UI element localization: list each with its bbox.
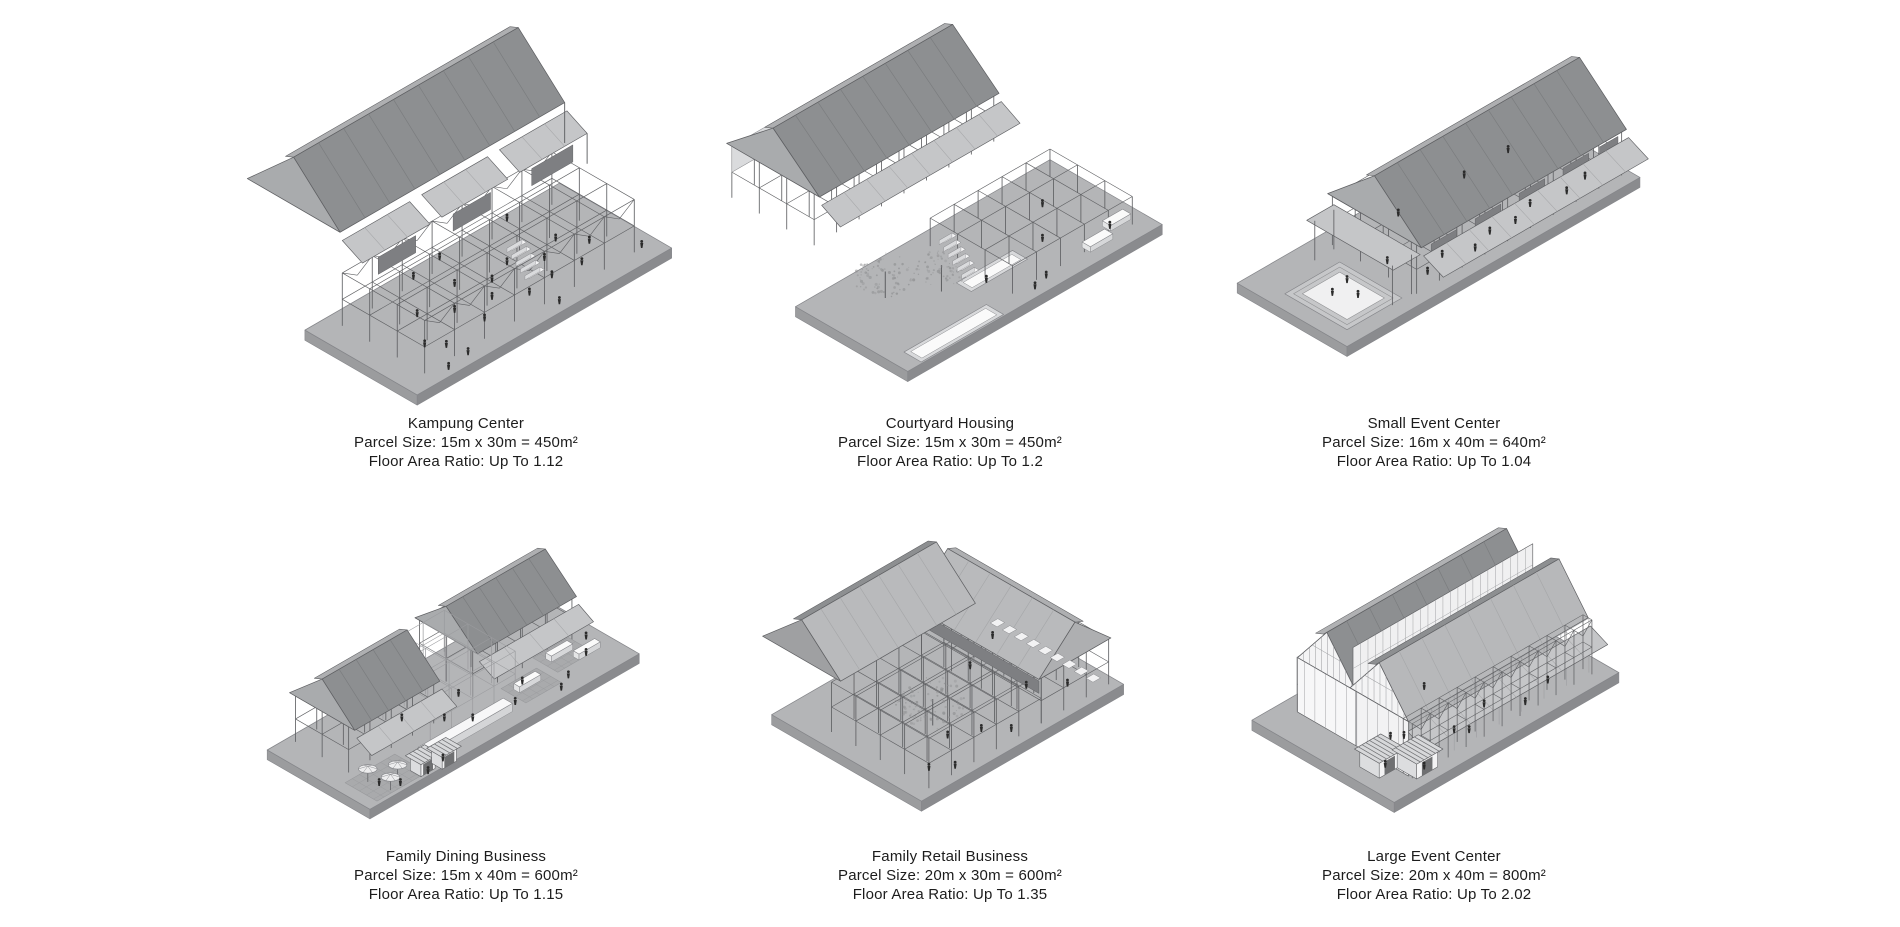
building-card-large-event-center: Large Event Center Parcel Size: 20m x 40… (1192, 471, 1676, 904)
building-title: Kampung Center (354, 414, 578, 433)
building-title: Family Dining Business (354, 847, 578, 866)
building-parcel-size: Parcel Size: 15m x 30m = 450m² (354, 433, 578, 452)
kampung-center-illustration (241, 6, 692, 410)
building-title: Large Event Center (1322, 847, 1546, 866)
typology-diagram-sheet: Kampung Center Parcel Size: 15m x 30m = … (0, 0, 1900, 927)
building-caption: Family Retail Business Parcel Size: 20m … (838, 847, 1062, 904)
building-floor-area-ratio: Floor Area Ratio: Up To 1.2 (838, 452, 1062, 471)
building-card-family-dining-business: Family Dining Business Parcel Size: 15m … (224, 471, 708, 904)
building-caption: Family Dining Business Parcel Size: 15m … (354, 847, 578, 904)
building-card-small-event-center: Small Event Center Parcel Size: 16m x 40… (1192, 6, 1676, 471)
building-card-kampung-center: Kampung Center Parcel Size: 15m x 30m = … (224, 6, 708, 471)
family-retail-business-illustration (727, 471, 1173, 843)
building-caption: Small Event Center Parcel Size: 16m x 40… (1322, 414, 1546, 471)
building-parcel-size: Parcel Size: 16m x 40m = 640m² (1322, 433, 1546, 452)
building-card-courtyard-housing: Courtyard Housing Parcel Size: 15m x 30m… (708, 6, 1192, 471)
building-title: Courtyard Housing (838, 414, 1062, 433)
building-typology-grid: Kampung Center Parcel Size: 15m x 30m = … (224, 0, 1676, 904)
building-floor-area-ratio: Floor Area Ratio: Up To 1.12 (354, 452, 578, 471)
building-caption: Courtyard Housing Parcel Size: 15m x 30m… (838, 414, 1062, 471)
building-floor-area-ratio: Floor Area Ratio: Up To 1.35 (838, 885, 1062, 904)
building-floor-area-ratio: Floor Area Ratio: Up To 2.02 (1322, 885, 1546, 904)
building-card-family-retail-business: Family Retail Business Parcel Size: 20m … (708, 471, 1192, 904)
courtyard-housing-illustration (725, 6, 1176, 410)
building-caption: Large Event Center Parcel Size: 20m x 40… (1322, 847, 1546, 904)
building-title: Family Retail Business (838, 847, 1062, 866)
building-parcel-size: Parcel Size: 15m x 40m = 600m² (354, 866, 578, 885)
building-title: Small Event Center (1322, 414, 1546, 433)
building-floor-area-ratio: Floor Area Ratio: Up To 1.04 (1322, 452, 1546, 471)
family-dining-business-illustration (243, 471, 689, 843)
large-event-center-illustration (1211, 471, 1657, 843)
building-floor-area-ratio: Floor Area Ratio: Up To 1.15 (354, 885, 578, 904)
building-parcel-size: Parcel Size: 20m x 30m = 600m² (838, 866, 1062, 885)
small-event-center-illustration (1209, 6, 1660, 410)
building-parcel-size: Parcel Size: 20m x 40m = 800m² (1322, 866, 1546, 885)
building-caption: Kampung Center Parcel Size: 15m x 30m = … (354, 414, 578, 471)
building-parcel-size: Parcel Size: 15m x 30m = 450m² (838, 433, 1062, 452)
